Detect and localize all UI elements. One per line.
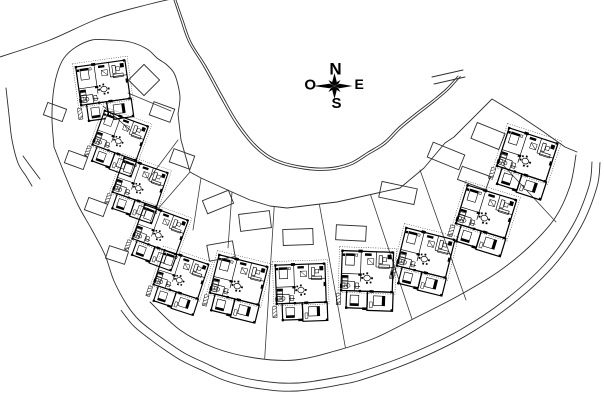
svg-text:E: E (355, 76, 364, 92)
svg-text:O: O (304, 77, 316, 94)
svg-text:N: N (329, 60, 341, 79)
svg-text:S: S (331, 95, 341, 112)
